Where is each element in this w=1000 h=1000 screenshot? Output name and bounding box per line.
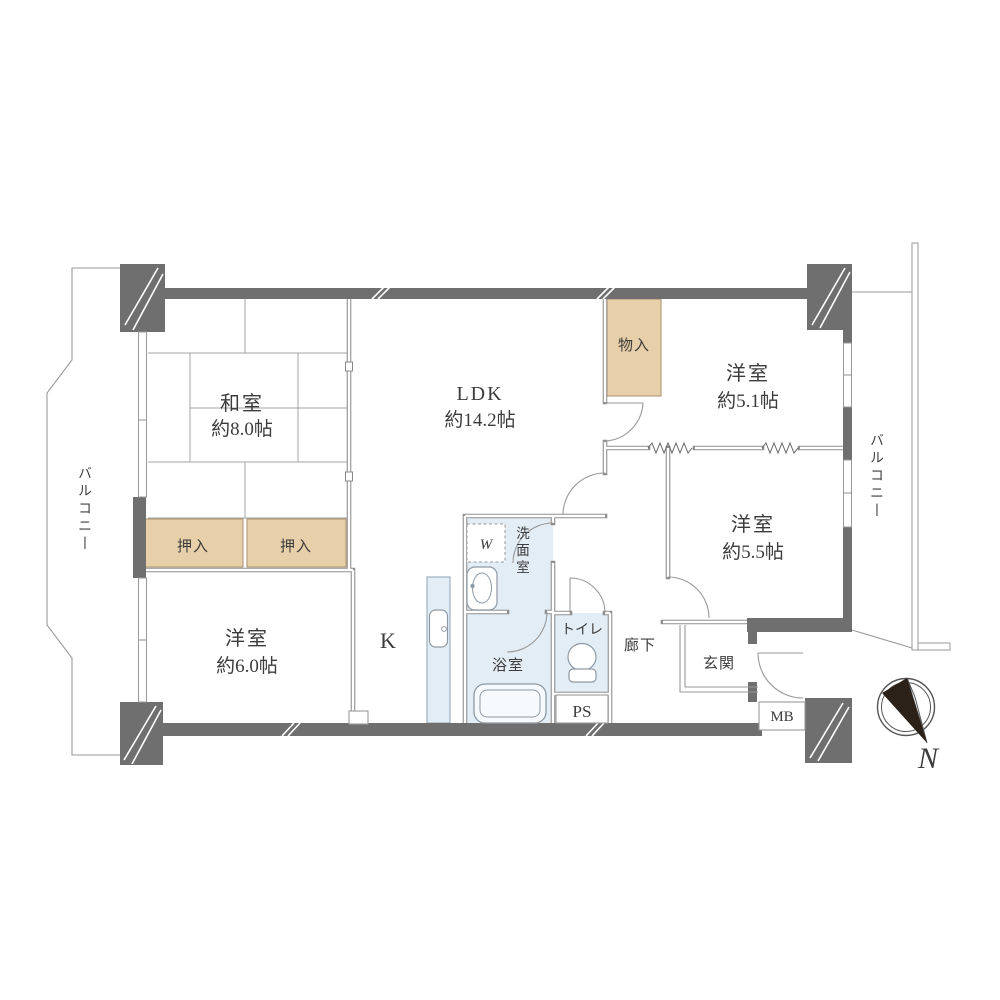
wall-left-segment — [133, 497, 146, 578]
balcony-left-label: バルコニ丨 — [78, 466, 92, 551]
balcony-right-bottom-line — [852, 630, 912, 648]
balcony-right-wall — [912, 243, 918, 650]
label-ps: PS — [573, 702, 592, 721]
toilet-bowl — [568, 644, 596, 671]
north-compass-icon: N — [878, 678, 940, 775]
room-size-western51: 約5.1帖 — [717, 390, 779, 412]
room-label-western55: 洋室 — [731, 513, 775, 536]
label-oshiire-right: 押入 — [280, 538, 312, 555]
wall-top — [165, 288, 807, 299]
compass-needle-dark — [882, 678, 927, 743]
room-label-ldk: LDK — [456, 383, 503, 405]
room-size-western55: 約5.5帖 — [722, 541, 784, 563]
wall-bottom — [163, 723, 762, 736]
window-washitsu — [139, 332, 147, 497]
wall-right-segment-2 — [843, 407, 852, 460]
label-bathroom: 浴室 — [492, 657, 524, 674]
kitchen-counter — [427, 577, 450, 723]
toilet-tank — [569, 669, 596, 682]
label-north: N — [917, 742, 940, 775]
label-washroom: 洗面室 — [516, 526, 530, 575]
room-size-western60: 約6.0帖 — [216, 655, 278, 677]
label-kitchen: K — [380, 628, 396, 653]
room-label-western60: 洋室 — [225, 627, 269, 650]
label-monoire: 物入 — [618, 337, 650, 354]
wall-right-segment-3 — [843, 527, 852, 632]
balcony-left: バルコニ丨 — [47, 268, 125, 755]
balcony-right-wall-foot — [918, 643, 950, 650]
pillar-top-right — [807, 264, 852, 330]
label-toilet: トイレ — [561, 623, 603, 638]
room-size-ldk: 約14.2帖 — [444, 409, 515, 431]
wall-right-segment-1 — [843, 330, 852, 343]
label-washer: W — [480, 537, 494, 553]
wall-entrance-top — [747, 618, 852, 632]
floorplan-canvas: バルコニ丨 バルコニ丨 — [0, 0, 1000, 1000]
label-entrance: 玄関 — [703, 655, 735, 672]
balcony-right: バルコニ丨 — [852, 243, 950, 650]
label-hallway: 廊下 — [624, 637, 656, 654]
slider-handle-1 — [346, 362, 353, 371]
doorframe-upper — [748, 630, 757, 644]
room-size-washitsu: 約8.0帖 — [211, 418, 273, 440]
slider-handle-2 — [346, 472, 353, 481]
label-oshiire-left: 押入 — [177, 538, 209, 555]
kitchen-sink — [430, 610, 448, 647]
room-label-washitsu: 和室 — [220, 392, 264, 415]
washbasin-faucet — [470, 584, 474, 588]
balcony-right-label: バルコニ丨 — [870, 433, 884, 518]
wall-notch — [349, 711, 368, 724]
room-label-western51: 洋室 — [726, 362, 770, 385]
label-mb: MB — [770, 709, 793, 725]
